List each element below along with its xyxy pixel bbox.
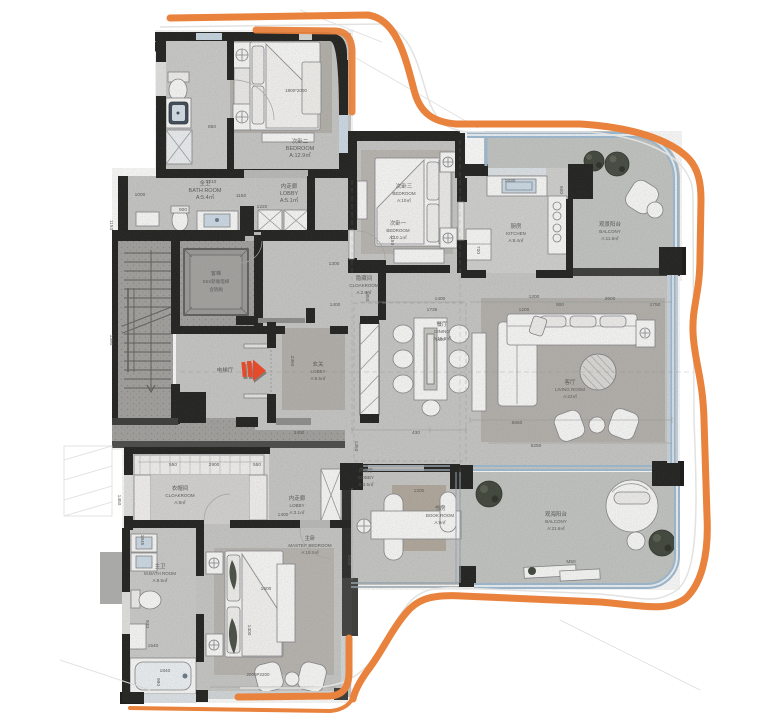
svg-text:1450: 1450 bbox=[116, 495, 122, 506]
